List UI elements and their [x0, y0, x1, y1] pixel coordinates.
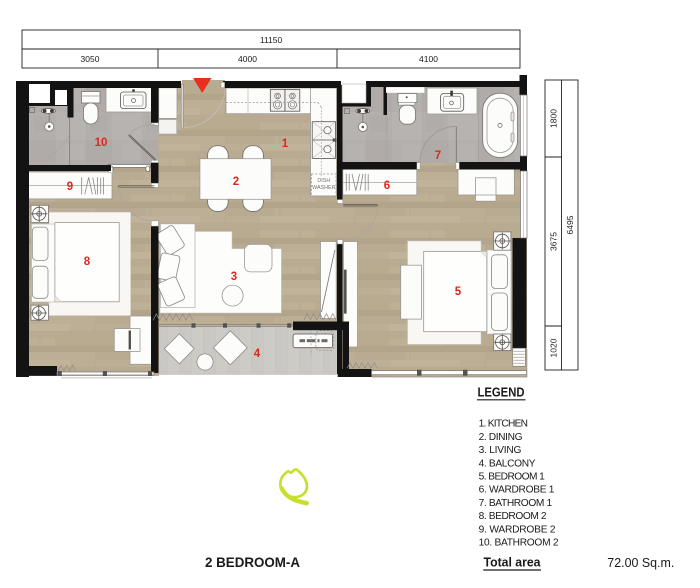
- svg-text:3. LIVING: 3. LIVING: [479, 445, 522, 456]
- svg-text:5. BEDROOM 1: 5. BEDROOM 1: [479, 472, 546, 483]
- svg-text:1. KITCHEN: 1. KITCHEN: [479, 419, 528, 430]
- svg-text:9: 9: [67, 181, 73, 193]
- svg-text:1020: 1020: [549, 338, 559, 357]
- svg-text:2. DINING: 2. DINING: [479, 432, 523, 443]
- svg-text:7: 7: [435, 150, 441, 162]
- svg-text:1800: 1800: [549, 109, 559, 128]
- svg-text:4000: 4000: [238, 54, 257, 64]
- svg-text:1: 1: [282, 138, 289, 150]
- svg-text:6: 6: [384, 180, 390, 192]
- svg-text:10. BATHROOM 2: 10. BATHROOM 2: [479, 538, 559, 549]
- svg-text:72.00 Sq.m.: 72.00 Sq.m.: [607, 555, 674, 570]
- svg-text:LEGEND: LEGEND: [478, 385, 525, 400]
- svg-text:2 BEDROOM-A: 2 BEDROOM-A: [205, 555, 300, 570]
- svg-text:DISH: DISH: [317, 178, 330, 184]
- svg-text:3675: 3675: [549, 232, 559, 251]
- svg-text:6495: 6495: [565, 215, 575, 234]
- svg-text:WASHER: WASHER: [312, 185, 336, 191]
- svg-text:5: 5: [455, 286, 462, 298]
- svg-text:6. WARDROBE 1: 6. WARDROBE 1: [479, 485, 555, 496]
- svg-text:11150: 11150: [260, 35, 283, 45]
- svg-text:4: 4: [254, 348, 261, 360]
- svg-text:8. BEDROOM 2: 8. BEDROOM 2: [479, 511, 547, 522]
- svg-text:8: 8: [84, 256, 91, 268]
- svg-text:3050: 3050: [81, 54, 100, 64]
- svg-text:Total area: Total area: [484, 556, 542, 570]
- svg-text:4. BALCONY: 4. BALCONY: [479, 458, 536, 469]
- svg-text:3: 3: [231, 271, 237, 283]
- svg-text:9. WARDROBE 2: 9. WARDROBE 2: [479, 524, 556, 535]
- svg-text:10: 10: [95, 137, 108, 149]
- svg-text:7. BATHROOM 1: 7. BATHROOM 1: [479, 498, 553, 509]
- svg-text:2: 2: [233, 176, 239, 188]
- svg-text:4100: 4100: [419, 54, 438, 64]
